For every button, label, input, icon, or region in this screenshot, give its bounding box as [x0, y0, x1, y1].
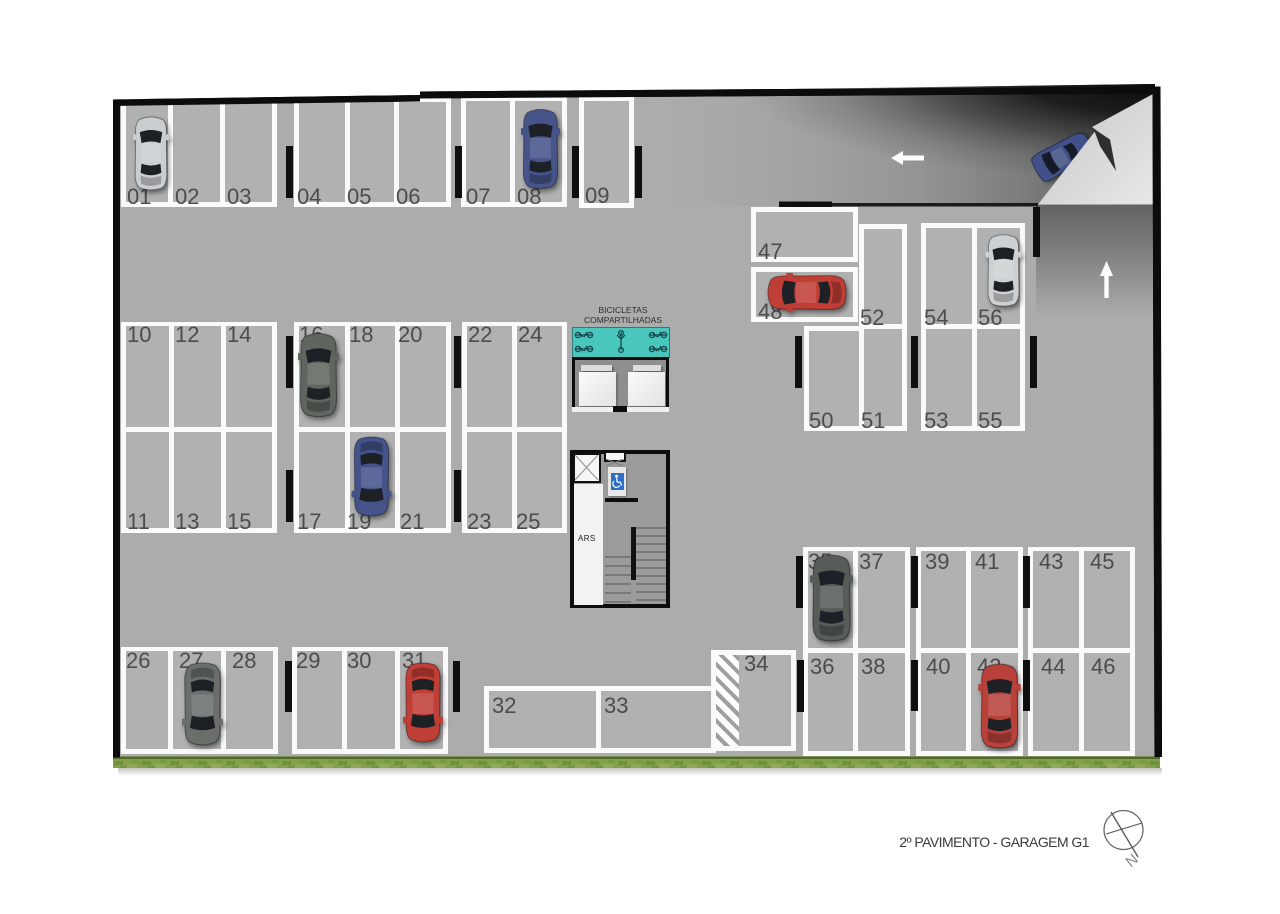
svg-text:N: N	[1123, 851, 1142, 871]
